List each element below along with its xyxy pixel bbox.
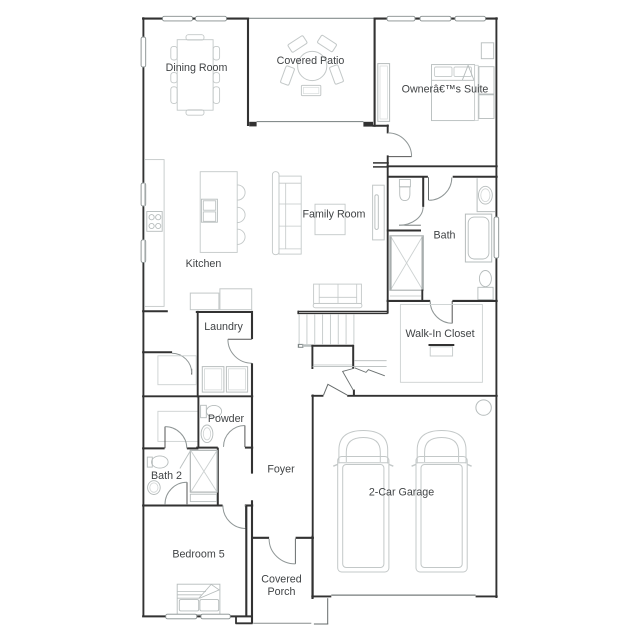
svg-text:Bath 2: Bath 2 [151,470,182,482]
svg-text:Family Room: Family Room [303,209,366,221]
svg-text:Walk-In Closet: Walk-In Closet [405,328,474,340]
svg-text:Covered Patio: Covered Patio [277,55,345,67]
svg-text:Powder: Powder [208,413,245,425]
svg-text:Laundry: Laundry [204,321,243,333]
svg-text:Covered: Covered [261,574,301,586]
svg-text:Kitchen: Kitchen [186,258,222,270]
svg-text:Ownerâ€™s Suite: Ownerâ€™s Suite [402,84,489,96]
svg-text:Bath: Bath [434,230,456,242]
svg-text:Dining Room: Dining Room [166,62,228,74]
svg-text:Porch: Porch [268,586,296,598]
svg-text:2-Car Garage: 2-Car Garage [369,487,434,499]
svg-text:Foyer: Foyer [267,464,295,476]
svg-text:Bedroom 5: Bedroom 5 [172,549,224,561]
